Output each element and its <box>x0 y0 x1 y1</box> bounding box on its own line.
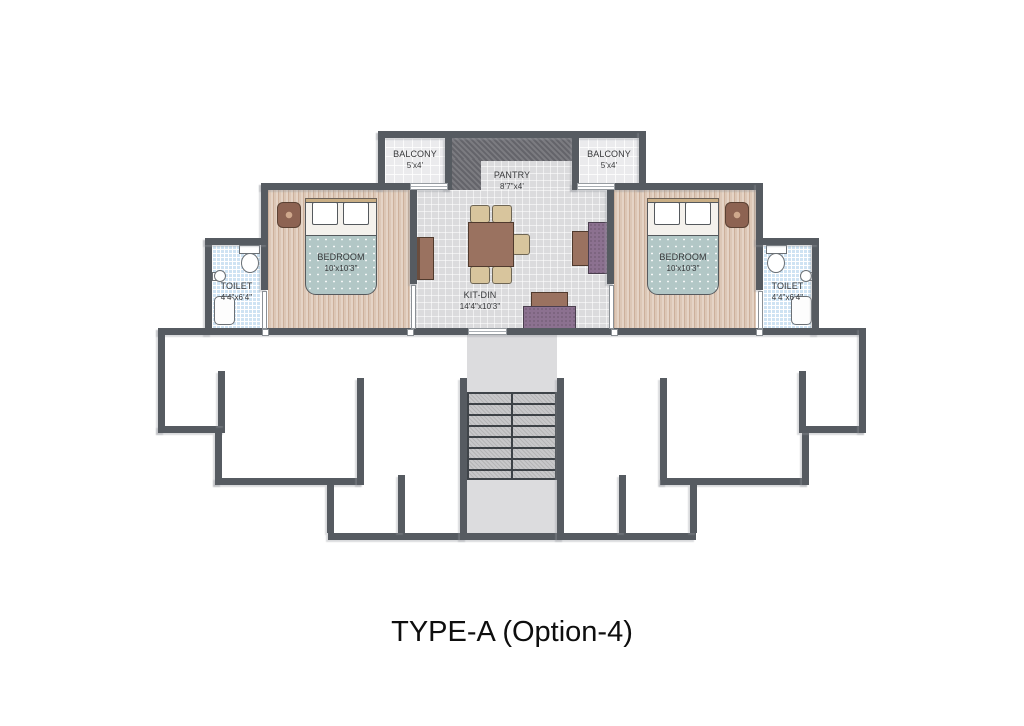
wall-lower-right-outer <box>859 328 866 433</box>
wall-lower-left-h1 <box>158 426 225 433</box>
room-name: TOILET <box>772 281 804 292</box>
pillow <box>312 202 338 225</box>
bedroom-right-label: BEDROOM 10'x10'3" <box>647 250 719 276</box>
room-name: BEDROOM <box>659 252 706 263</box>
wall-lower-right-stub-dn <box>690 485 697 533</box>
room-dims: 8'7"x4' <box>500 182 524 192</box>
pantry-label: PANTRY 8'7"x4' <box>452 168 572 194</box>
toilet-left-label: TOILET 4'4"x6'4" <box>210 279 263 305</box>
dining-chair <box>512 234 530 255</box>
room-dims: 5'x4' <box>407 161 423 171</box>
pillow <box>343 202 369 225</box>
wall-toilet-right-top <box>756 238 819 245</box>
wall-toilet-left-top <box>205 238 268 245</box>
wall-lower-left-h2 <box>215 478 363 485</box>
room-dims: 10'x10'3" <box>324 264 357 274</box>
wall-balcony-right-outer <box>639 131 646 190</box>
wall-lower-right-stub-up <box>799 371 806 426</box>
dining-chair <box>492 205 512 223</box>
dining-chair <box>470 266 490 284</box>
wall-lower-left-stub-up <box>218 371 225 426</box>
room-name: PANTRY <box>494 170 530 181</box>
room-name: TOILET <box>221 281 253 292</box>
room-dims: 10'x10'3" <box>666 264 699 274</box>
wall-lower-left-stub-dn <box>327 485 334 533</box>
wall-bedroom-left-inner <box>410 190 417 284</box>
wc-bowl <box>241 253 259 273</box>
balcony-right-label: BALCONY 5'x4' <box>579 144 639 176</box>
room-dims: 5'x4' <box>601 161 617 171</box>
wall-lower-right-h1 <box>799 426 866 433</box>
tv-cabinet <box>417 237 434 280</box>
dining-chair <box>470 205 490 223</box>
room-dims: 4'4"x6'4" <box>772 293 803 303</box>
pillow <box>685 202 711 225</box>
room-dims: 14'4"x10'3" <box>460 302 501 312</box>
wall-lower-right-tall <box>660 378 667 485</box>
dining-chair <box>492 266 512 284</box>
nightstand-lamp <box>277 202 301 228</box>
door-jamb <box>756 329 763 336</box>
entrance-door <box>468 328 507 335</box>
wall-lower-right-h2 <box>661 478 809 485</box>
plan-title: TYPE-A (Option-4) <box>0 615 1024 650</box>
pantry-counter <box>452 138 573 161</box>
pillow <box>654 202 680 225</box>
toilet-right-label: TOILET 4'4"x6'4" <box>761 279 814 305</box>
double-bed <box>305 198 377 295</box>
double-bed <box>647 198 719 295</box>
wall-balcony-left-outer <box>378 131 385 190</box>
wall-lower-left-tall <box>357 378 364 485</box>
balcony-right-slider <box>577 183 615 190</box>
room-name: KIT-DIN <box>464 290 497 301</box>
wall-top <box>378 131 646 138</box>
door-jamb <box>611 329 618 336</box>
wall-lower-right-stub2 <box>619 475 626 533</box>
wall-bedroom-right-outer <box>756 183 763 290</box>
wall-lower-left-outer <box>158 328 165 433</box>
wall-lower-right-v1 <box>802 433 809 485</box>
balcony-left-slider <box>410 183 448 190</box>
bedroom-right-door-leaf <box>609 285 614 329</box>
room-name: BEDROOM <box>317 252 364 263</box>
bedroom-left-label: BEDROOM 10'x10'3" <box>305 250 377 276</box>
room-dims: 4'4"x6'4" <box>221 293 252 303</box>
room-name: BALCONY <box>393 149 437 160</box>
kitdin-label: KIT-DIN 14'4"x10'3" <box>430 288 530 314</box>
balcony-left-label: BALCONY 5'x4' <box>385 144 445 176</box>
wc-bowl <box>767 253 785 273</box>
room-name: BALCONY <box>587 149 631 160</box>
dining-table <box>468 222 514 267</box>
wall-stair-shaft-left <box>460 378 467 540</box>
wall-bedroom-right-inner <box>607 190 614 284</box>
nightstand-lamp <box>725 202 749 228</box>
wall-lower-bottom <box>328 533 696 540</box>
wall-stair-shaft-right <box>557 378 564 540</box>
door-jamb <box>407 329 414 336</box>
wall-lower-left-stub2 <box>398 475 405 533</box>
floor-plan: BALCONY 5'x4' BALCONY 5'x4' PANTRY 8'7"x… <box>0 0 1024 726</box>
door-jamb <box>262 329 269 336</box>
wall-bedroom-left-outer <box>261 183 268 290</box>
side-table <box>572 231 589 266</box>
staircase-steps <box>467 392 557 480</box>
bedroom-left-door-leaf <box>411 285 416 329</box>
